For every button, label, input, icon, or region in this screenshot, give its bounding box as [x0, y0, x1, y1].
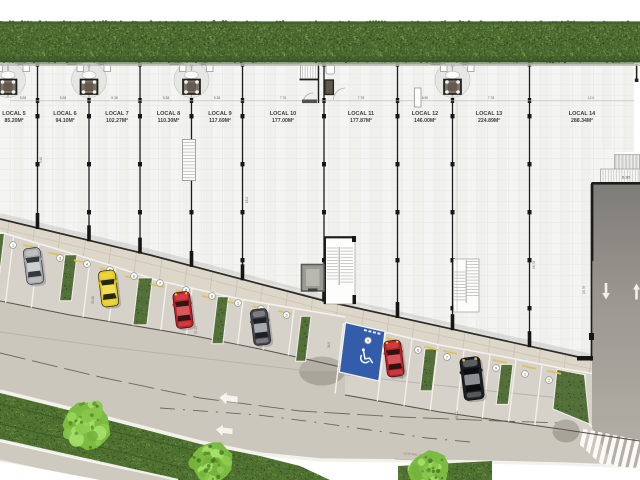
svg-text:LOCAL 9: LOCAL 9	[208, 111, 231, 117]
svg-text:18.0: 18.0	[245, 197, 249, 203]
svg-text:5.38: 5.38	[20, 96, 27, 100]
svg-text:5.38: 5.38	[214, 96, 221, 100]
svg-text:12.0: 12.0	[588, 96, 595, 100]
svg-text:5.50: 5.50	[422, 96, 429, 100]
svg-text:5.38: 5.38	[111, 96, 118, 100]
svg-text:LOCAL 5: LOCAL 5	[2, 111, 25, 117]
svg-text:LOCAL 10: LOCAL 10	[270, 111, 297, 117]
svg-text:177.87M²: 177.87M²	[350, 118, 372, 124]
svg-text:16.78: 16.78	[582, 286, 586, 294]
svg-text:224.89M²: 224.89M²	[478, 118, 500, 124]
svg-text:9.92: 9.92	[142, 307, 146, 313]
svg-text:117.69M²: 117.69M²	[209, 118, 231, 124]
svg-text:LOCAL 14: LOCAL 14	[569, 111, 596, 117]
svg-text:LOCAL 13: LOCAL 13	[476, 111, 503, 117]
svg-text:30.86: 30.86	[91, 296, 95, 304]
svg-text:5.38: 5.38	[163, 96, 170, 100]
svg-text:LOCAL 7: LOCAL 7	[105, 111, 128, 117]
svg-text:288.34M²: 288.34M²	[571, 118, 593, 124]
svg-text:177.00M²: 177.00M²	[272, 118, 294, 124]
svg-text:9.40: 9.40	[39, 157, 43, 163]
svg-text:5.38: 5.38	[60, 96, 67, 100]
svg-text:7.78: 7.78	[358, 96, 365, 100]
svg-text:18.78: 18.78	[532, 261, 536, 269]
svg-text:LOCAL 8: LOCAL 8	[157, 111, 180, 117]
svg-text:LOCAL 12: LOCAL 12	[412, 111, 439, 117]
svg-text:26.90: 26.90	[400, 371, 404, 379]
svg-text:146.00M²: 146.00M²	[414, 118, 436, 124]
svg-text:7.78: 7.78	[488, 96, 495, 100]
svg-text:7.75: 7.75	[280, 96, 287, 100]
svg-text:36.0: 36.0	[327, 342, 331, 348]
svg-text:LOCAL 6: LOCAL 6	[53, 111, 76, 117]
svg-text:LOCAL 11: LOCAL 11	[348, 111, 374, 117]
svg-text:6.30: 6.30	[622, 175, 631, 180]
svg-text:102.27M²: 102.27M²	[106, 118, 128, 124]
svg-text:26.00: 26.00	[455, 411, 459, 419]
svg-text:110.30M²: 110.30M²	[158, 118, 180, 124]
svg-text:94.10M²: 94.10M²	[55, 118, 74, 124]
svg-text:85.20M²: 85.20M²	[4, 118, 23, 124]
svg-text:37.29: 37.29	[194, 326, 198, 334]
